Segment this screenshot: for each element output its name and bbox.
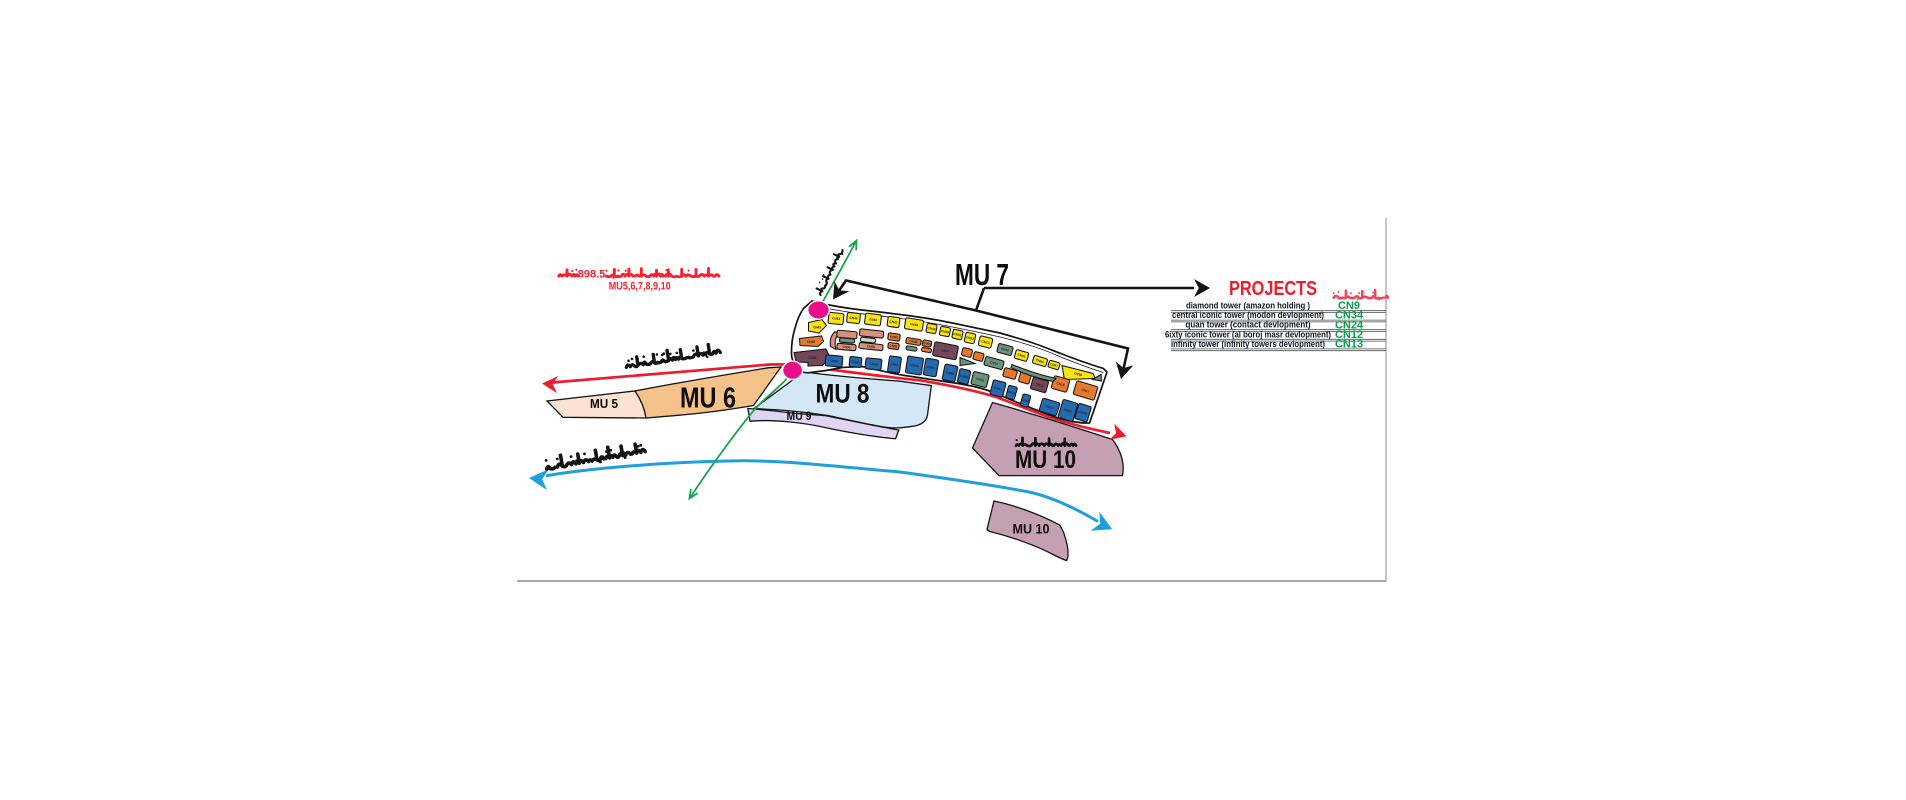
svg-text:898.5: 898.5: [578, 269, 606, 281]
svg-text:PROJECTS: PROJECTS: [1229, 278, 1317, 300]
svg-text:MU 10: MU 10: [1015, 446, 1076, 474]
svg-text:MU 7: MU 7: [955, 257, 1009, 292]
svg-text:infinity tower (infinity tower: infinity tower (infinity towers devlopme…: [1171, 339, 1325, 350]
svg-text:CN43: CN43: [813, 325, 821, 329]
svg-text:MU 8: MU 8: [816, 379, 870, 409]
svg-text:MU5,6,7,8,9,10: MU5,6,7,8,9,10: [609, 280, 671, 292]
svg-text:MU 6: MU 6: [680, 383, 736, 415]
svg-text:CN50: CN50: [830, 359, 839, 364]
svg-text:CN96: CN96: [842, 345, 851, 350]
svg-text:CN85: CN85: [808, 356, 817, 360]
svg-text:MU 10: MU 10: [1013, 522, 1050, 537]
svg-text:CN49: CN49: [807, 340, 815, 344]
svg-text:MU 9: MU 9: [787, 411, 812, 423]
svg-text:MU 5: MU 5: [590, 396, 618, 411]
